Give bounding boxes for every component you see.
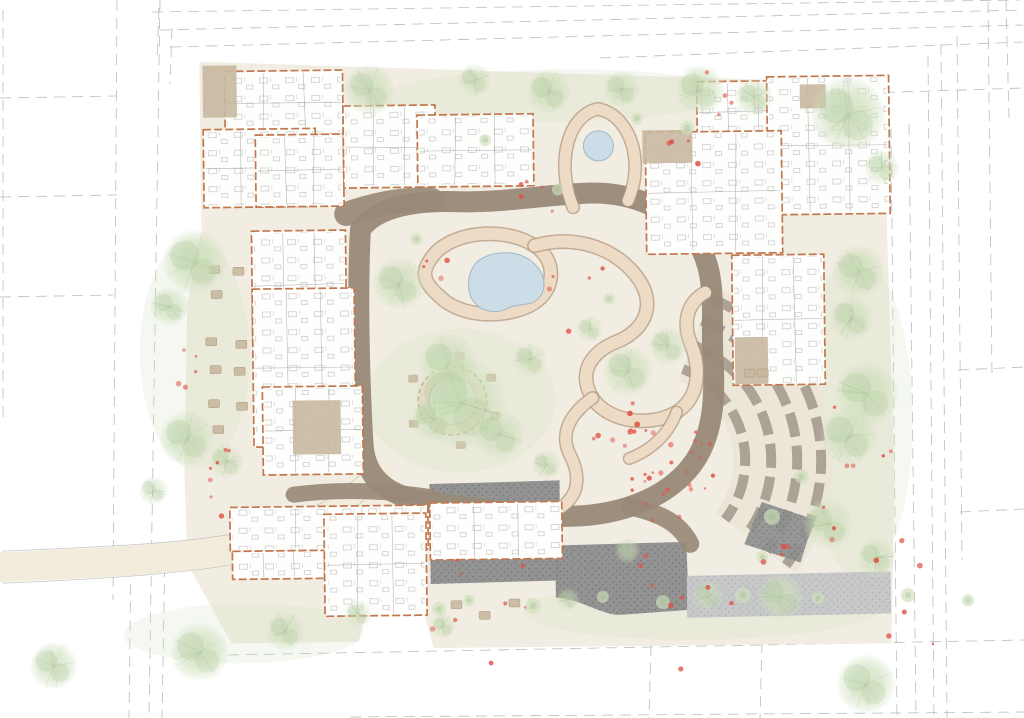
outdoor-furniture	[757, 369, 768, 377]
flower-dot	[932, 643, 935, 646]
boundary-line	[0, 96, 117, 98]
garden-bench	[408, 375, 418, 383]
patio-terrace	[642, 130, 692, 164]
outdoor-furniture	[479, 611, 490, 619]
boundary-line	[760, 642, 762, 718]
outdoor-furniture	[236, 402, 247, 410]
outdoor-furniture	[213, 426, 224, 434]
building-furniture-texture	[432, 503, 561, 558]
boundary-line	[0, 195, 117, 197]
boundary-line	[152, 0, 1020, 12]
patio-terrace	[202, 65, 237, 117]
flower-dot	[678, 666, 683, 671]
boundary-line	[600, 42, 1023, 58]
outdoor-furniture	[236, 340, 247, 348]
boundary-line	[957, 36, 962, 560]
boundary-line	[170, 25, 1023, 47]
tree	[29, 641, 78, 690]
boundary-line	[958, 367, 1024, 370]
outdoor-furniture	[509, 599, 520, 607]
flower-dot	[902, 609, 907, 614]
boundary-line	[170, 28, 172, 84]
site-plan	[0, 0, 1024, 718]
boundary-line	[988, 2, 992, 376]
boundary-line	[113, 0, 117, 600]
outdoor-furniture	[206, 338, 217, 346]
boundary-line	[157, 8, 159, 62]
boundary-line	[350, 712, 1024, 717]
boundary-line	[160, 10, 1023, 30]
tree	[138, 475, 168, 505]
outdoor-furniture	[744, 369, 755, 377]
flower-dot	[917, 563, 923, 569]
tree-branch-line	[759, 596, 781, 597]
boundary-line	[928, 56, 934, 718]
building-furniture-texture	[234, 552, 322, 577]
outdoor-furniture	[210, 366, 221, 374]
site-plan-canvas	[0, 0, 1024, 718]
outdoor-furniture	[211, 291, 222, 299]
boundary-line	[1006, 0, 1009, 118]
flower-dot	[489, 661, 494, 666]
path-spur	[294, 490, 430, 499]
site-layers	[0, 52, 975, 718]
outdoor-furniture	[208, 400, 219, 408]
tree	[836, 653, 897, 714]
outdoor-furniture	[451, 601, 462, 609]
patio-terrace	[292, 400, 341, 455]
boundary-line	[649, 645, 651, 718]
flower-dot	[899, 538, 904, 543]
boundary-line	[960, 509, 1024, 512]
outdoor-furniture	[233, 267, 244, 275]
boundary-line	[0, 295, 113, 297]
boundary-line	[941, 44, 947, 718]
small-pond	[583, 131, 613, 161]
outdoor-furniture	[234, 367, 245, 375]
